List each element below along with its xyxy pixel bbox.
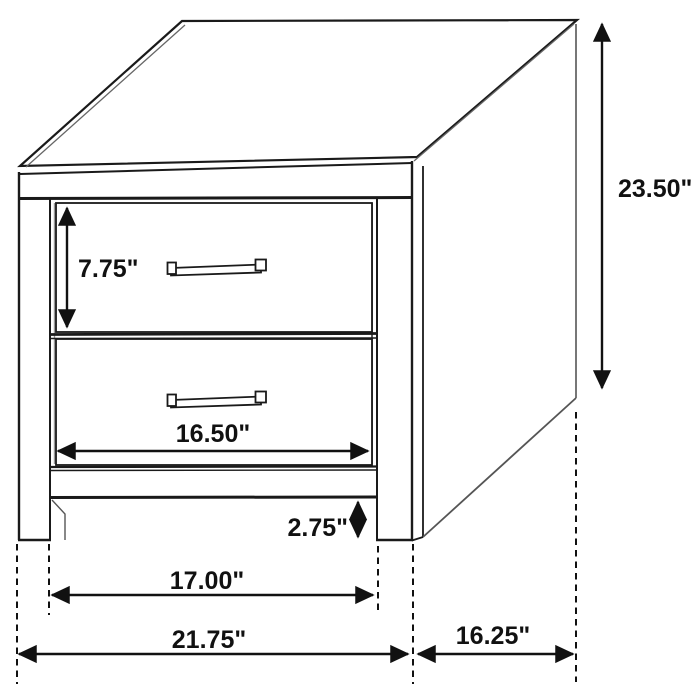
dimension-inner-leg-span: 17.00" — [52, 567, 373, 595]
drawer-divider-upper-line — [50, 334, 377, 335]
side-panel-bottom-edge — [423, 398, 576, 537]
inner-leg-span-label: 17.00" — [170, 567, 244, 595]
drawer-2-bottom-lower-line — [50, 470, 377, 471]
drawer-height-label: 7.75" — [78, 255, 139, 283]
dimension-base-clearance: 2.75" — [287, 502, 358, 542]
drawer-2-bottom-upper-line — [50, 467, 377, 468]
right-leg-side-bottom-edge — [412, 537, 423, 541]
nightstand-dimension-diagram: 7.75" 16.50" 2.75" 17.00" 21.75" 16.25" … — [0, 0, 700, 700]
drawer-divider-lower-line — [50, 338, 377, 339]
dimension-overall-height: 23.50" — [602, 24, 692, 388]
diagram-canvas: 7.75" 16.50" 2.75" 17.00" 21.75" 16.25" … — [0, 0, 700, 700]
drawer-width-label: 16.50" — [176, 420, 250, 448]
top-rail-bottom-edge — [19, 198, 412, 199]
overall-width-label: 21.75" — [172, 626, 246, 654]
left-leg-side-face-line — [52, 500, 65, 540]
bottom-rail-bottom-edge — [50, 497, 377, 498]
depth-label: 16.25" — [456, 622, 530, 650]
overall-height-label: 23.50" — [618, 175, 692, 203]
dimension-overall-width: 21.75" — [19, 626, 408, 654]
base-clearance-label: 2.75" — [287, 514, 348, 542]
dimension-depth: 16.25" — [418, 622, 573, 654]
